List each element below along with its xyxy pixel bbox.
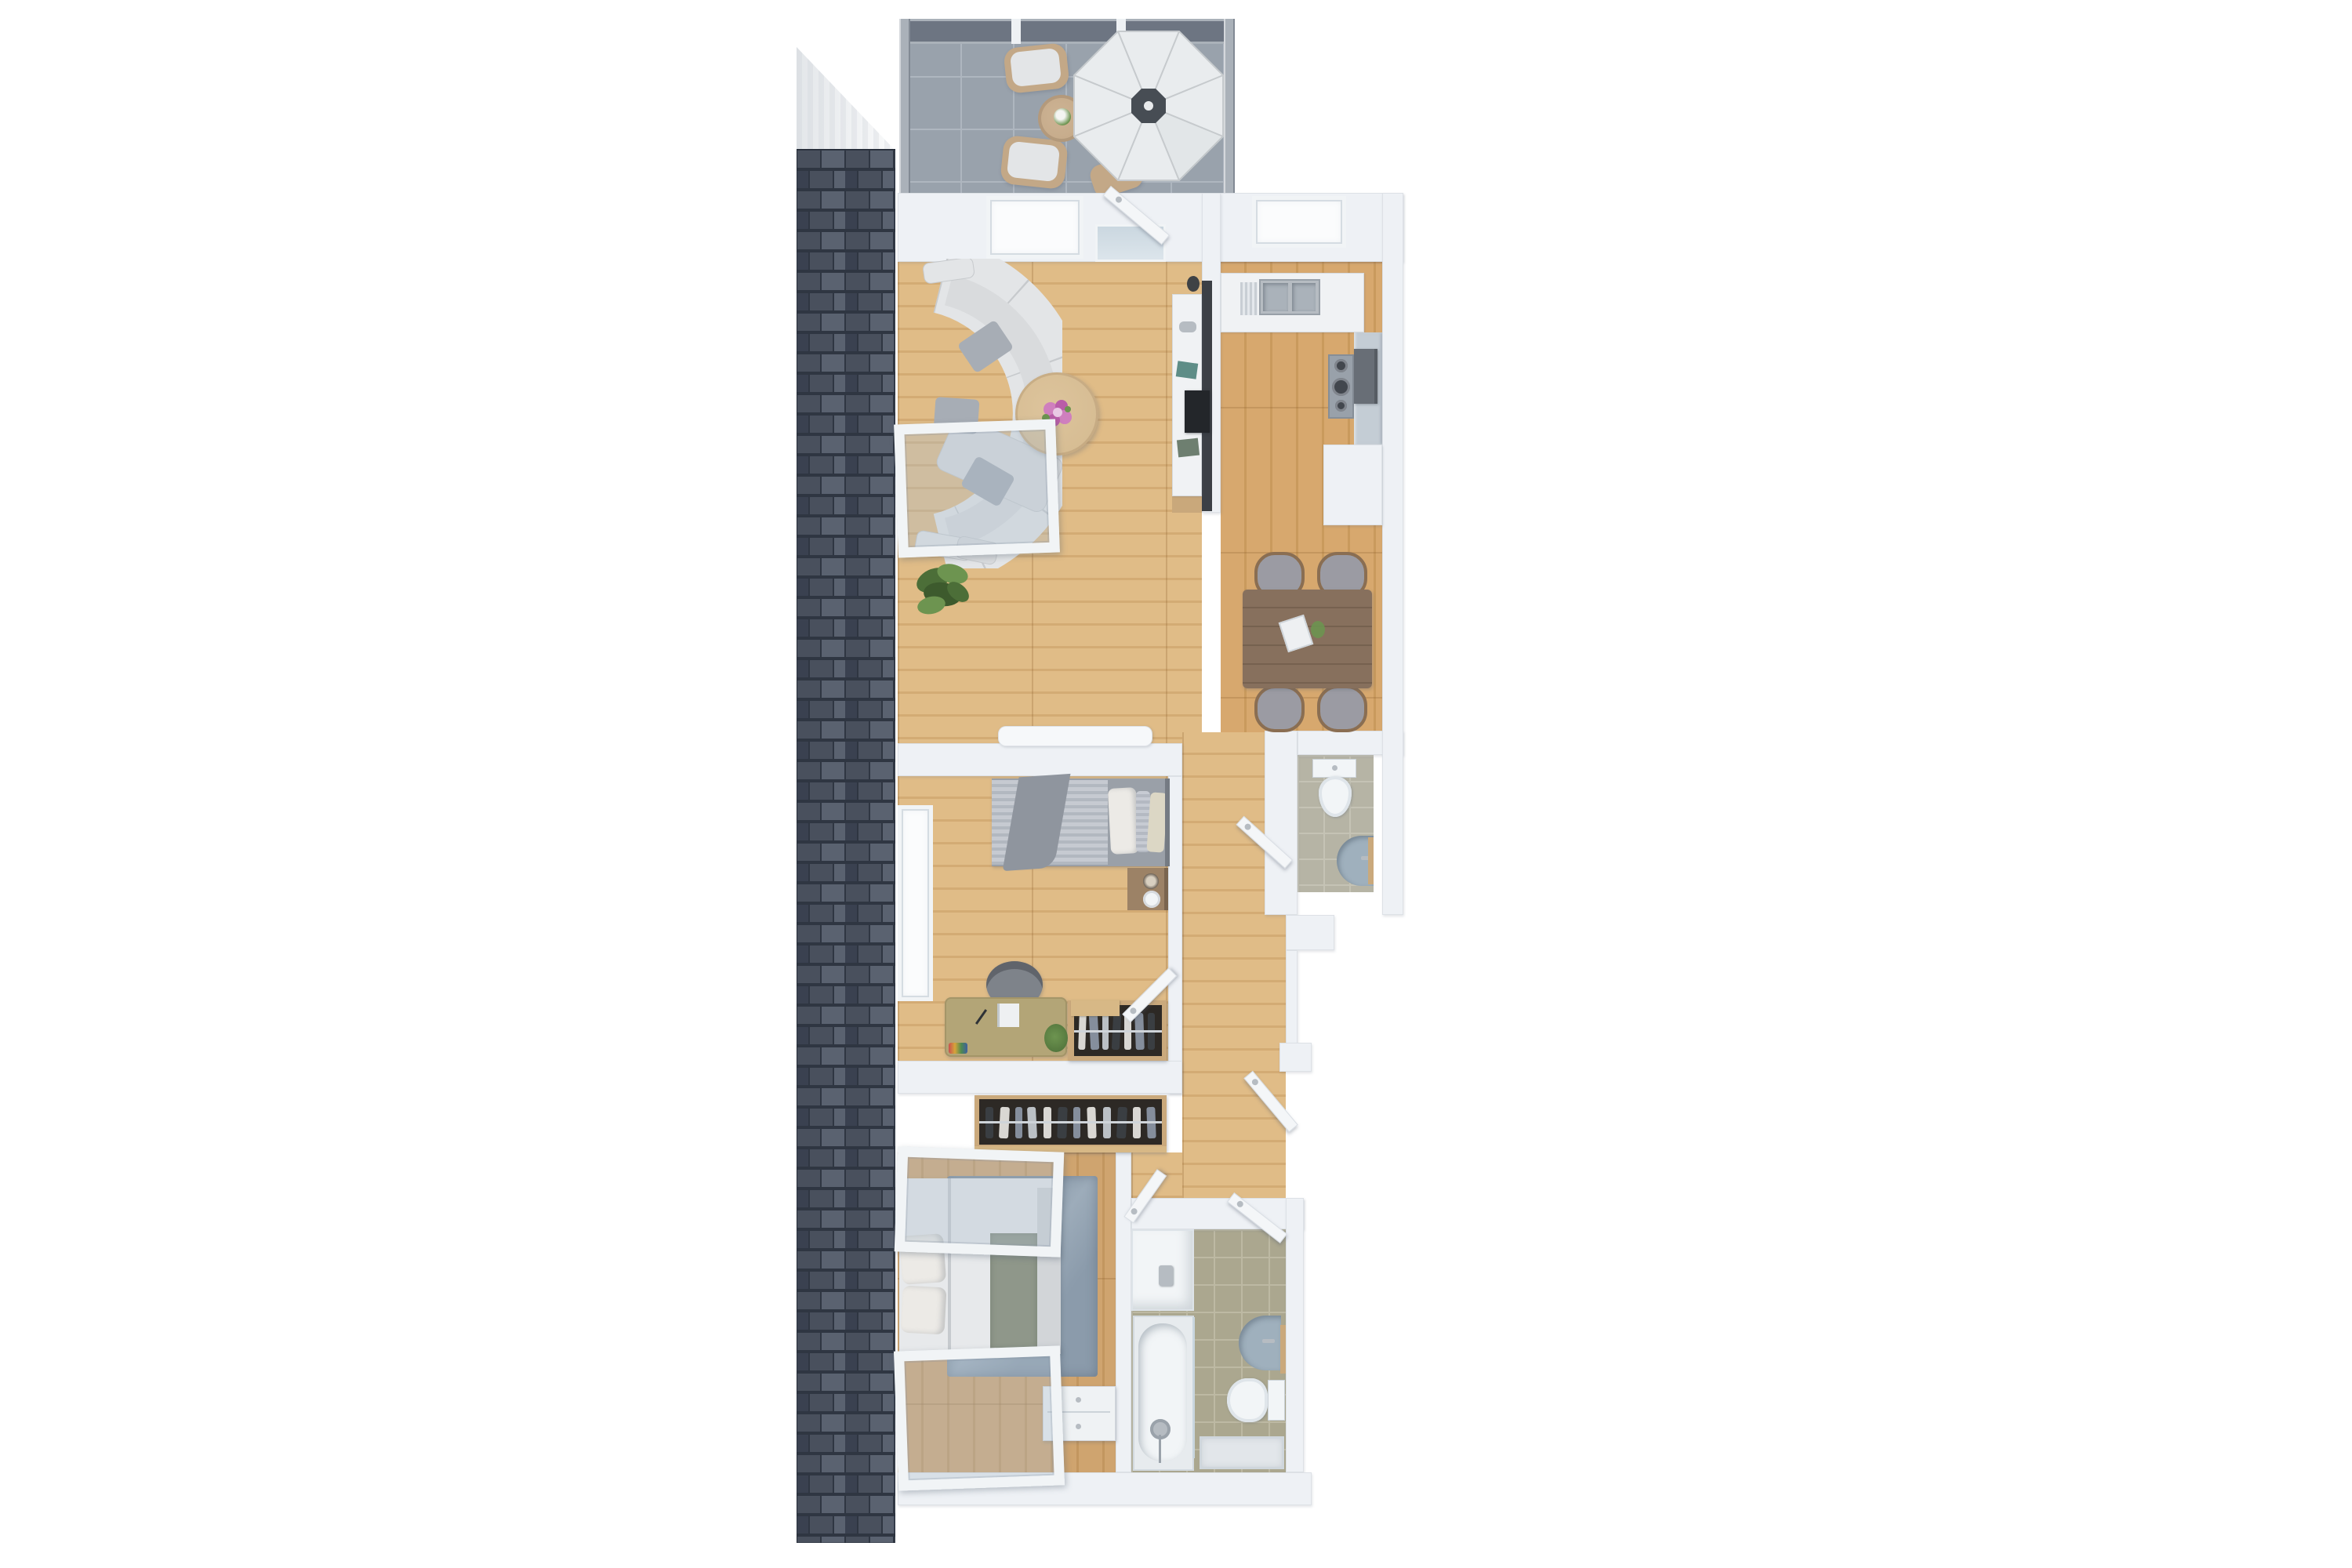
desk-plant xyxy=(1044,1024,1068,1052)
brick-accent-wall xyxy=(797,149,895,1543)
vanity-faucet xyxy=(1159,1265,1173,1286)
open-wardrobe xyxy=(1068,1000,1167,1061)
closet-rail xyxy=(979,1121,1162,1123)
wall-bath-west xyxy=(1116,1152,1131,1472)
wall-bath-north xyxy=(1131,1198,1304,1229)
wall-step xyxy=(1286,915,1334,950)
parasol-umbrella xyxy=(1068,25,1229,187)
island-wood-base xyxy=(1172,494,1202,513)
kitchen-tall-cabinet-block xyxy=(1323,445,1382,525)
bedroom-window-strip xyxy=(898,805,933,1001)
wall-right xyxy=(1382,193,1403,915)
desk-notebook xyxy=(997,1004,1019,1027)
wall-stub xyxy=(1279,1043,1312,1072)
bath-toilet-bowl xyxy=(1227,1378,1268,1422)
desk-palette xyxy=(949,1043,967,1054)
gas-hob xyxy=(1328,354,1354,419)
bath-glass-screen xyxy=(1192,1317,1195,1458)
sink-basin-right xyxy=(1292,283,1316,311)
closet-interior xyxy=(979,1099,1162,1145)
wall-bedroom-north xyxy=(898,743,1182,776)
wall-wc-west xyxy=(1265,731,1298,915)
outdoor-chair-cushion xyxy=(1010,48,1062,87)
bathtub xyxy=(1133,1316,1194,1471)
living-window-box xyxy=(894,419,1060,557)
table-lamp xyxy=(1143,891,1160,908)
table-plant-sprig xyxy=(1311,621,1325,638)
shower-tray xyxy=(1200,1436,1284,1469)
master-window-box-lower xyxy=(894,1345,1065,1490)
wall-hall-west xyxy=(1168,776,1182,1094)
fading-stripe-shadow xyxy=(797,47,895,151)
wall-bedroom-south xyxy=(898,1061,1182,1094)
balcony-railing-left xyxy=(899,19,910,194)
wc-cistern xyxy=(1312,759,1356,778)
tv-unit xyxy=(1185,390,1210,433)
open-closet-master xyxy=(975,1095,1167,1152)
single-bed xyxy=(992,779,1167,866)
island-candle xyxy=(1187,276,1200,292)
bed-pillow xyxy=(1108,787,1139,855)
living-room-window xyxy=(986,196,1083,259)
basin-faucet xyxy=(1262,1339,1275,1343)
oven-appliance xyxy=(1354,349,1377,404)
bathtub-inner xyxy=(1138,1323,1187,1461)
shower-hose xyxy=(1159,1435,1161,1463)
railing-post xyxy=(1011,19,1021,44)
kitchen-window xyxy=(1252,196,1346,248)
sink-drainer xyxy=(1240,282,1258,315)
island-cups xyxy=(1179,321,1196,332)
floor-plant xyxy=(909,549,980,635)
outdoor-chair-cushion xyxy=(1007,141,1060,182)
wardrobe-top-shelf xyxy=(1071,1000,1120,1016)
dining-chair xyxy=(1254,685,1305,732)
bath-wood-shelf xyxy=(1280,1325,1286,1374)
wardrobe-rail xyxy=(1074,1030,1162,1033)
nightstand-vase xyxy=(1143,873,1159,889)
wall-bath-east xyxy=(1286,1198,1304,1472)
island-tray xyxy=(1177,438,1200,458)
umbrella-pole xyxy=(1144,101,1153,111)
floor-plan xyxy=(0,0,2352,1568)
sideboard xyxy=(998,726,1152,746)
brick-pattern xyxy=(797,149,895,1543)
wc-wood-shelf xyxy=(1368,837,1374,884)
bed-pillow xyxy=(900,1286,946,1335)
island-book xyxy=(1176,361,1199,379)
bath-toilet-cistern xyxy=(1268,1380,1285,1421)
bed-headboard xyxy=(1165,779,1170,866)
master-window-box-upper xyxy=(895,1146,1065,1257)
sink-basin-left xyxy=(1263,283,1288,311)
dining-chair xyxy=(1317,685,1367,732)
wall-hall-east xyxy=(1286,950,1298,1046)
